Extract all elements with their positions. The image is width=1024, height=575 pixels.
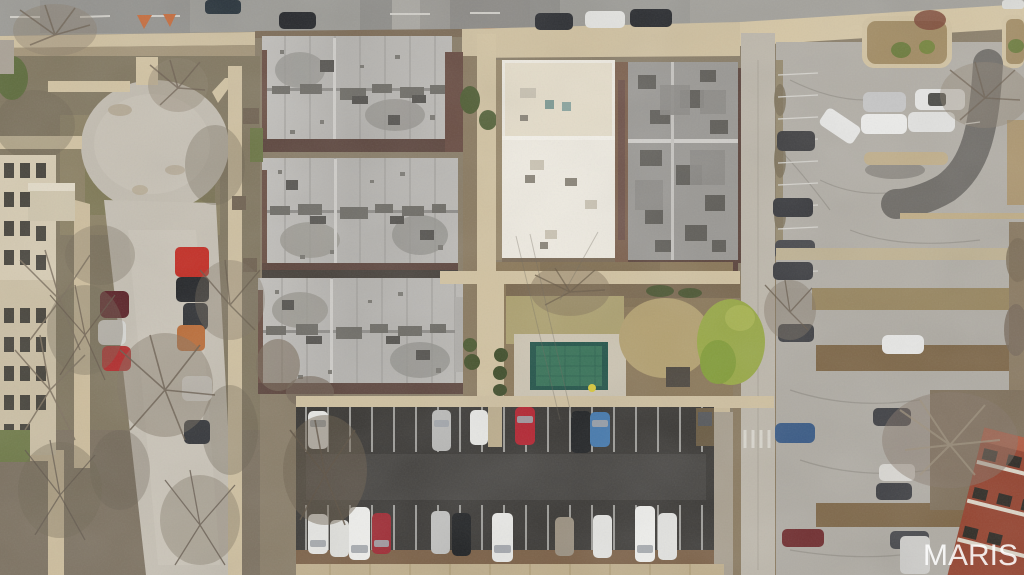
svg-text:MARIS: MARIS (923, 539, 1018, 572)
